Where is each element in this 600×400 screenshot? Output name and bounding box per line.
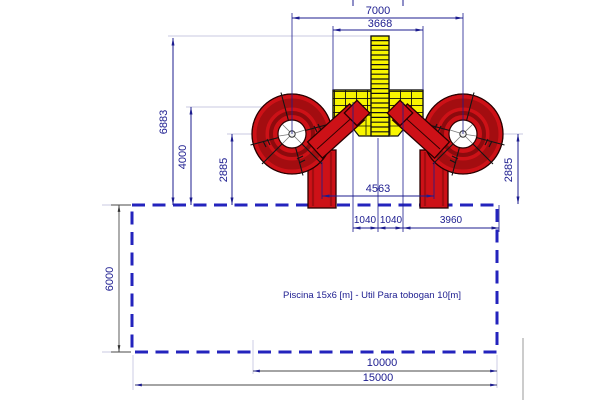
- svg-text:15000: 15000: [363, 372, 394, 384]
- svg-text:1040: 1040: [354, 215, 377, 226]
- cad-canvas: Piscina 15x6 [m] - Util Para tobogan 10[…: [0, 0, 600, 400]
- svg-text:6000: 6000: [104, 267, 116, 291]
- svg-text:7000: 7000: [366, 5, 390, 17]
- pool-note-label: Piscina 15x6 [m] - Util Para tobogan 10[…: [283, 290, 461, 301]
- cad-drawing-viewport: Piscina 15x6 [m] - Util Para tobogan 10[…: [0, 0, 600, 400]
- svg-text:1040: 1040: [380, 215, 403, 226]
- dim-bowl-offset-right: 2885: [503, 134, 518, 204]
- dim-pool-width: 6000: [104, 205, 131, 352]
- access-ladder: [371, 36, 389, 136]
- svg-text:6883: 6883: [158, 110, 170, 134]
- pool-outline: [132, 205, 497, 352]
- svg-text:4000: 4000: [177, 145, 189, 169]
- dim-total-height: 6883: [158, 38, 173, 205]
- dim-bowl-offset-left: 2885: [218, 134, 232, 205]
- svg-text:2885: 2885: [503, 158, 515, 182]
- dim-pool-length: 15000: [135, 372, 497, 385]
- svg-text:2885: 2885: [218, 158, 230, 182]
- svg-text:10000: 10000: [367, 357, 398, 369]
- dim-slide-usable-length: 10000: [253, 357, 497, 371]
- svg-text:3960: 3960: [440, 215, 463, 226]
- dim-tower-height: 4000: [177, 107, 191, 205]
- svg-text:3668: 3668: [368, 18, 392, 30]
- construction-lines: [102, 36, 523, 390]
